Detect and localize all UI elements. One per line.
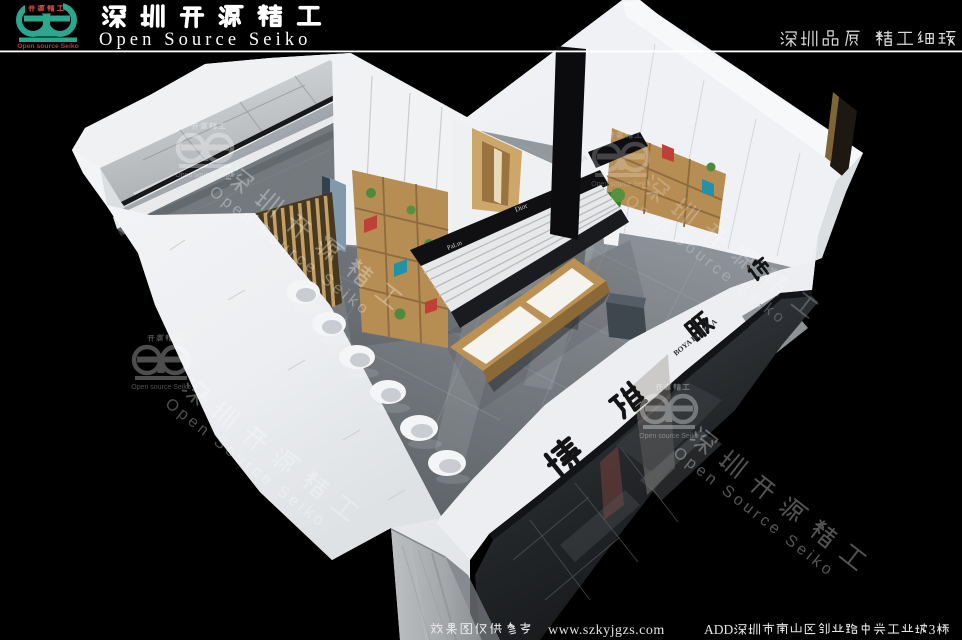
svg-text:www.szkyjgzs.com: www.szkyjgzs.com	[548, 623, 665, 638]
svg-text:Open Source Seiko: Open Source Seiko	[99, 30, 312, 50]
svg-text:3: 3	[929, 622, 936, 637]
svg-text:ADD:: ADD:	[704, 622, 737, 637]
svg-text:Open source Seiko: Open source Seiko	[17, 43, 79, 50]
